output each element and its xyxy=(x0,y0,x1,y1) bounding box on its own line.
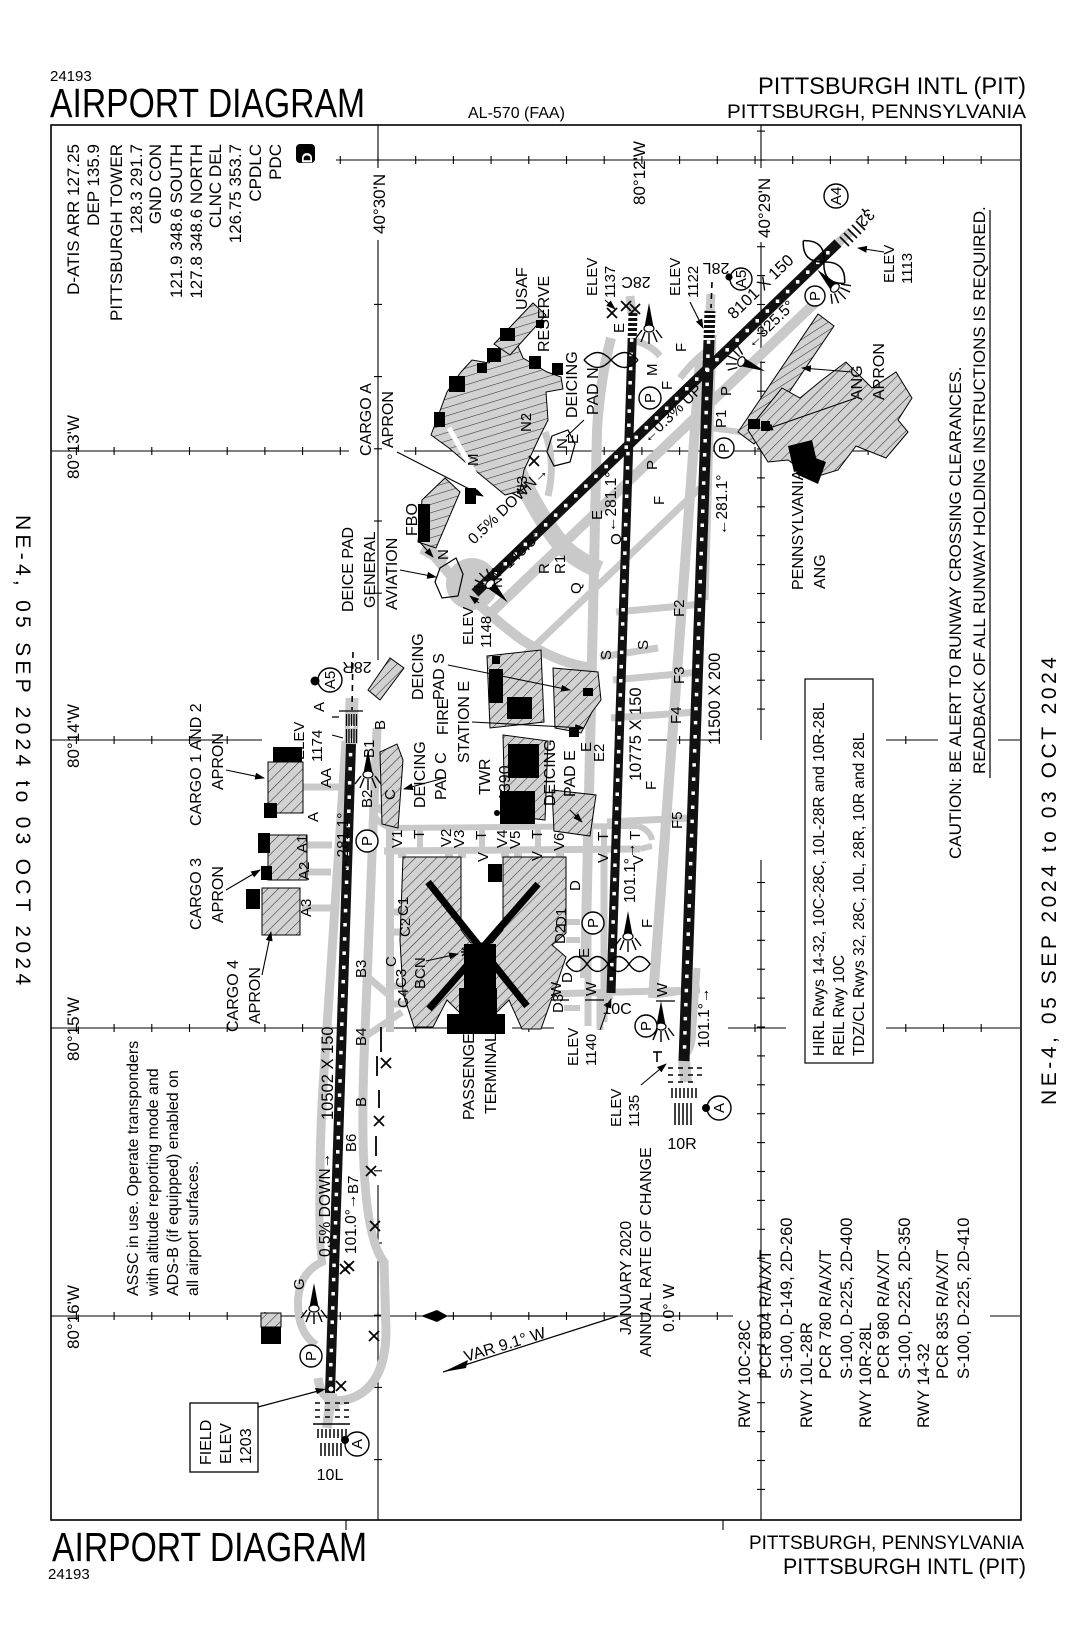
svg-text:TWR: TWR xyxy=(477,759,494,795)
svg-text:A1: A1 xyxy=(294,835,311,853)
svg-text:N2: N2 xyxy=(518,413,535,432)
svg-text:REIL Rwy 10C: REIL Rwy 10C xyxy=(831,955,848,1056)
svg-text:F3: F3 xyxy=(671,666,688,684)
svg-text:B3: B3 xyxy=(353,960,370,978)
svg-text:CARGO 1 AND 2: CARGO 1 AND 2 xyxy=(188,703,205,826)
svg-text:F: F xyxy=(651,496,668,505)
svg-text:0.0° W: 0.0° W xyxy=(661,1283,678,1332)
svg-text:F: F xyxy=(659,381,676,390)
svg-text:10775 X 150: 10775 X 150 xyxy=(627,687,645,781)
svg-text:S: S xyxy=(635,640,652,650)
svg-text:P: P xyxy=(718,386,735,396)
svg-text:F: F xyxy=(673,343,690,352)
svg-text:F: F xyxy=(639,919,656,928)
svg-text:BCN: BCN xyxy=(412,957,429,989)
svg-text:FBO: FBO xyxy=(404,503,421,536)
svg-text:RWY 10L-28R: RWY 10L-28R xyxy=(798,1322,816,1428)
svg-text:ASSC in use. Operate transpond: ASSC in use. Operate transponders xyxy=(125,1041,142,1296)
svg-text:ANG: ANG xyxy=(812,554,829,589)
svg-text:RWY 14-32: RWY 14-32 xyxy=(915,1343,933,1428)
svg-text:F2: F2 xyxy=(671,599,688,617)
svg-text:NE-4, 05 SEP 2024 to 03 OCT: NE-4, 05 SEP 2024 to 03 OCT 2024 xyxy=(11,515,34,985)
svg-text:STATION E: STATION E xyxy=(456,681,473,763)
svg-text:ELEV: ELEV xyxy=(460,607,477,645)
svg-text:DEP 135.9: DEP 135.9 xyxy=(84,144,103,226)
svg-text:B7: B7 xyxy=(345,1176,362,1194)
svg-text:S-100, D-225, 2D-400: S-100, D-225, 2D-400 xyxy=(838,1218,856,1379)
svg-text:127.8 348.6 NORTH: 127.8 348.6 NORTH xyxy=(187,144,206,299)
svg-text:C3: C3 xyxy=(393,969,410,988)
svg-text:PCR 804 R/A/X/T: PCR 804 R/A/X/T xyxy=(757,1250,775,1379)
svg-text:V6: V6 xyxy=(551,833,568,851)
svg-text:A: A xyxy=(305,812,322,822)
svg-text:JANUARY 2020: JANUARY 2020 xyxy=(618,1221,635,1335)
svg-text:E: E xyxy=(576,948,593,958)
svg-text:1137: 1137 xyxy=(602,266,619,298)
svg-text:P: P xyxy=(585,918,602,928)
svg-text:PITTSBURGH INTL (PIT): PITTSBURGH INTL (PIT) xyxy=(758,73,1026,100)
svg-text:F: F xyxy=(643,781,660,790)
svg-text:N: N xyxy=(435,549,452,560)
svg-text:A5: A5 xyxy=(733,270,750,288)
svg-text:P: P xyxy=(638,1021,655,1031)
svg-text:PAD C: PAD C xyxy=(433,752,450,800)
svg-text:B2: B2 xyxy=(359,790,376,808)
svg-text:TERMINAL: TERMINAL xyxy=(483,1033,500,1114)
svg-text:←281.1°: ←281.1° xyxy=(714,475,731,536)
svg-text:S: S xyxy=(598,650,615,660)
svg-text:DEICING: DEICING xyxy=(564,351,581,418)
svg-text:D-ATIS ARR 127.25: D-ATIS ARR 127.25 xyxy=(64,144,83,295)
svg-text:FIELD: FIELD xyxy=(198,1420,215,1465)
svg-text:10L: 10L xyxy=(317,1467,344,1484)
svg-text:ELEV: ELEV xyxy=(565,1028,582,1066)
svg-text:D1: D1 xyxy=(553,908,570,927)
svg-text:W: W xyxy=(583,981,600,996)
svg-text:D: D xyxy=(299,152,316,163)
svg-text:N3: N3 xyxy=(514,476,531,495)
svg-text:C: C xyxy=(383,956,400,967)
svg-text:W: W xyxy=(548,981,565,996)
svg-text:PENNSYLVANIA: PENNSYLVANIA xyxy=(790,469,807,590)
svg-text:GENERAL: GENERAL xyxy=(362,531,379,608)
svg-text:N4: N4 xyxy=(489,569,506,588)
svg-text:T: T xyxy=(627,831,644,840)
svg-text:CPDLC: CPDLC xyxy=(246,144,265,202)
svg-text:PAD N: PAD N xyxy=(585,367,602,415)
svg-text:M: M xyxy=(465,454,482,467)
svg-text:DEICING: DEICING xyxy=(542,739,559,806)
svg-text:V: V xyxy=(595,853,612,863)
svg-text:0.5% DOWN→: 0.5% DOWN→ xyxy=(317,1153,334,1257)
svg-text:28L: 28L xyxy=(703,259,730,276)
svg-text:40°30'N: 40°30'N xyxy=(370,174,389,234)
svg-text:CARGO 4: CARGO 4 xyxy=(225,960,242,1032)
svg-text:P: P xyxy=(642,393,659,403)
svg-text:E: E xyxy=(611,323,628,333)
svg-text:C: C xyxy=(382,789,399,800)
svg-text:R: R xyxy=(536,563,553,574)
svg-text:NE-4, 05 SEP 2024 to 03 OCT: NE-4, 05 SEP 2024 to 03 OCT 2024 xyxy=(1038,657,1061,1105)
svg-text:USAF: USAF xyxy=(514,267,531,310)
svg-text:1203: 1203 xyxy=(238,1428,255,1464)
svg-text:A: A xyxy=(349,1439,366,1449)
svg-text:FIRE: FIRE xyxy=(435,699,452,735)
svg-text:CARGO 3: CARGO 3 xyxy=(188,858,205,930)
svg-text:RESERVE: RESERVE xyxy=(536,276,553,352)
svg-text:READBACK OF ALL RUNWAY HOLDING: READBACK OF ALL RUNWAY HOLDING INSTRUCTI… xyxy=(970,206,989,774)
svg-text:P: P xyxy=(359,836,376,846)
svg-text:V: V xyxy=(529,851,546,861)
svg-text:101.0°→: 101.0°→ xyxy=(343,1194,360,1255)
svg-text:80°13'W: 80°13'W xyxy=(64,415,83,479)
svg-text:128.3 291.7: 128.3 291.7 xyxy=(127,144,146,234)
svg-text:A: A xyxy=(311,702,328,712)
svg-text:ELEV: ELEV xyxy=(584,258,601,296)
svg-text:80°14'W: 80°14'W xyxy=(64,704,83,768)
svg-text:P: P xyxy=(807,291,824,301)
svg-text:R1: R1 xyxy=(552,555,569,574)
svg-text:ELEV: ELEV xyxy=(667,258,684,296)
svg-text:T: T xyxy=(529,830,546,839)
svg-text:APRON: APRON xyxy=(247,967,264,1024)
svg-text:C4: C4 xyxy=(395,989,412,1008)
svg-text:80°15'W: 80°15'W xyxy=(64,997,83,1061)
svg-text:PCR 780 R/A/X/T: PCR 780 R/A/X/T xyxy=(817,1250,835,1379)
svg-text:G: G xyxy=(291,1278,308,1290)
svg-text:RWY 10R-28L: RWY 10R-28L xyxy=(857,1322,875,1428)
svg-text:B: B xyxy=(372,720,389,730)
svg-text:126.75 353.7: 126.75 353.7 xyxy=(226,144,245,243)
svg-text:1140: 1140 xyxy=(583,1034,600,1066)
svg-text:28C: 28C xyxy=(621,273,650,290)
svg-text:ADS-B (if equipped) enabled on: ADS-B (if equipped) enabled on xyxy=(165,1070,182,1296)
svg-text:M: M xyxy=(644,364,661,377)
svg-text:PASSENGER: PASSENGER xyxy=(461,1022,478,1120)
svg-text:S-100, D-225, 2D-410: S-100, D-225, 2D-410 xyxy=(955,1218,973,1379)
svg-text:APRON: APRON xyxy=(210,866,227,923)
svg-text:CARGO A: CARGO A xyxy=(358,383,375,456)
svg-text:ELEV: ELEV xyxy=(291,722,308,760)
svg-text:E: E xyxy=(589,510,606,520)
svg-text:40°29'N: 40°29'N xyxy=(755,178,774,238)
svg-text:A2: A2 xyxy=(296,862,313,880)
svg-text:11500 X 200: 11500 X 200 xyxy=(706,653,724,745)
svg-text:B: B xyxy=(353,1097,370,1107)
svg-text:V3: V3 xyxy=(451,830,468,848)
svg-text:101.1°→: 101.1°→ xyxy=(622,843,639,904)
svg-text:AA: AA xyxy=(318,768,335,788)
svg-text:S-100, D-149, 2D-260: S-100, D-149, 2D-260 xyxy=(778,1218,796,1379)
svg-text:V5: V5 xyxy=(507,831,524,849)
svg-text:1390: 1390 xyxy=(497,765,514,801)
svg-text:10502 X 150: 10502 X 150 xyxy=(319,1026,337,1120)
svg-text:ELEV: ELEV xyxy=(881,245,898,283)
svg-text:Q: Q xyxy=(608,533,625,545)
svg-text:PCR 980 R/A/X/T: PCR 980 R/A/X/T xyxy=(875,1250,893,1379)
svg-text:P: P xyxy=(303,1351,320,1361)
svg-text:A: A xyxy=(711,1103,728,1113)
svg-text:V1: V1 xyxy=(389,830,406,848)
svg-text:ANNUAL RATE OF CHANGE: ANNUAL RATE OF CHANGE xyxy=(638,1147,655,1357)
svg-text:PDC: PDC xyxy=(266,144,285,180)
svg-text:28R: 28R xyxy=(342,658,371,675)
svg-text:PCR 835 R/A/X/T: PCR 835 R/A/X/T xyxy=(934,1250,952,1379)
svg-text:D: D xyxy=(559,972,576,983)
svg-text:V: V xyxy=(630,855,647,865)
svg-text:C1: C1 xyxy=(395,897,412,916)
svg-text:A4: A4 xyxy=(828,187,845,205)
svg-text:HIRL Rwys 14-32, 10C-28C, 10L-: HIRL Rwys 14-32, 10C-28C, 10L-28R and 10… xyxy=(811,702,828,1056)
svg-text:S-100, D-225, 2D-350: S-100, D-225, 2D-350 xyxy=(896,1218,914,1379)
svg-text:10R: 10R xyxy=(667,1136,696,1153)
svg-text:RWY 10C-28C: RWY 10C-28C xyxy=(736,1319,754,1428)
svg-text:PITTSBURGH, PENNSYLVANIA: PITTSBURGH, PENNSYLVANIA xyxy=(749,1533,1024,1554)
svg-text:A3: A3 xyxy=(298,899,315,917)
svg-text:1135: 1135 xyxy=(626,1095,643,1127)
svg-text:V: V xyxy=(475,852,492,862)
svg-text:ELEV: ELEV xyxy=(608,1089,625,1127)
svg-text:121.9 348.6 SOUTH: 121.9 348.6 SOUTH xyxy=(167,144,186,298)
svg-text:1148: 1148 xyxy=(478,616,495,648)
svg-text:CAUTION: BE ALERT TO RUNWAY CR: CAUTION: BE ALERT TO RUNWAY CROSSING CLE… xyxy=(946,367,965,860)
svg-text:PAD S: PAD S xyxy=(431,653,448,700)
svg-text:←281.1°: ←281.1° xyxy=(335,813,352,874)
svg-text:24193: 24193 xyxy=(48,1566,90,1583)
svg-text:AIRPORT DIAGRAM: AIRPORT DIAGRAM xyxy=(52,1524,367,1570)
svg-text:80°12'W: 80°12'W xyxy=(630,141,649,205)
svg-text:T: T xyxy=(411,830,428,839)
svg-text:with altitude reporting mode a: with altitude reporting mode and xyxy=(145,1068,162,1297)
svg-text:E2: E2 xyxy=(591,744,608,762)
svg-text:101.1°→: 101.1°→ xyxy=(696,988,713,1049)
svg-text:CLNC DEL: CLNC DEL xyxy=(206,144,225,228)
svg-text:F5: F5 xyxy=(669,811,686,829)
svg-text:GND CON: GND CON xyxy=(146,144,165,224)
svg-text:1122: 1122 xyxy=(685,266,702,298)
svg-text:APRON: APRON xyxy=(210,733,227,790)
svg-text:AIRPORT DIAGRAM: AIRPORT DIAGRAM xyxy=(50,80,365,126)
svg-text:P: P xyxy=(716,443,733,453)
svg-text:ELEV: ELEV xyxy=(218,1423,235,1464)
svg-text:B6: B6 xyxy=(343,1134,360,1152)
svg-text:A5: A5 xyxy=(322,671,339,689)
svg-text:P: P xyxy=(644,460,661,470)
svg-text:TDZ/CL Rwys 32, 28C, 10L, 28R,: TDZ/CL Rwys 32, 28C, 10L, 28R, 10R and 2… xyxy=(851,732,868,1056)
svg-text:D: D xyxy=(567,880,584,891)
svg-text:AL-570 (FAA): AL-570 (FAA) xyxy=(468,105,565,122)
svg-text:1113: 1113 xyxy=(899,253,916,284)
svg-text:PITTSBURGH, PENNSYLVANIA: PITTSBURGH, PENNSYLVANIA xyxy=(727,102,1026,123)
svg-text:1174: 1174 xyxy=(309,730,326,762)
svg-text:DEICE PAD: DEICE PAD xyxy=(340,527,357,612)
svg-text:all airport surfaces.: all airport surfaces. xyxy=(185,1161,202,1296)
svg-text:APRON: APRON xyxy=(871,343,888,400)
svg-text:T: T xyxy=(595,832,612,841)
svg-text:ANG: ANG xyxy=(849,365,866,400)
svg-text:B4: B4 xyxy=(353,1028,370,1046)
svg-text:T: T xyxy=(473,831,490,840)
svg-text:W: W xyxy=(654,982,671,997)
svg-text:←281.1°: ←281.1° xyxy=(603,472,620,533)
svg-text:C2: C2 xyxy=(397,918,414,937)
svg-text:DEICING: DEICING xyxy=(410,633,427,700)
svg-text:APRON: APRON xyxy=(380,391,397,448)
svg-text:F4: F4 xyxy=(668,706,685,724)
svg-text:80°16'W: 80°16'W xyxy=(64,1285,83,1349)
svg-text:Q: Q xyxy=(568,582,585,594)
svg-text:DEICING: DEICING xyxy=(412,741,429,808)
svg-text:PITTSBURGH TOWER: PITTSBURGH TOWER xyxy=(107,144,126,321)
svg-text:B1: B1 xyxy=(361,740,378,758)
svg-text:PAD E: PAD E xyxy=(562,750,579,797)
svg-text:D2: D2 xyxy=(552,925,569,944)
svg-text:P1: P1 xyxy=(713,410,730,428)
svg-text:PITTSBURGH INTL (PIT): PITTSBURGH INTL (PIT) xyxy=(783,1554,1026,1579)
svg-text:AVIATION: AVIATION xyxy=(384,538,401,610)
